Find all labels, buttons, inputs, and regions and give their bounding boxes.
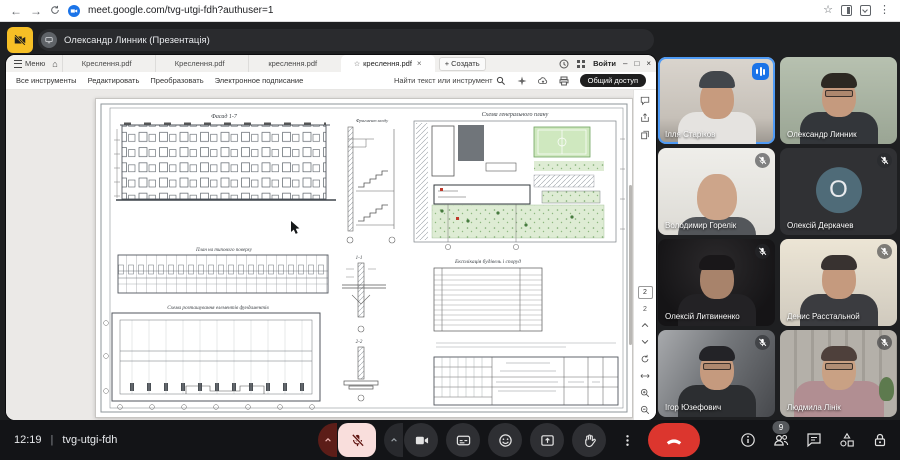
meet-control-bar: 12:19 | tvg-utgi-fdh 9 [0,420,900,460]
mic-options-caret[interactable] [318,423,337,457]
page-down-icon [640,337,650,347]
presentation-banner[interactable]: Олександр Линник (Презентація) [38,29,654,51]
print-icon [559,76,569,86]
acrobat-menu: Меню [11,59,48,68]
more-options-button[interactable] [614,423,640,457]
raise-hand-button[interactable] [572,423,606,457]
call-controls [318,423,700,457]
camera-toggle-button[interactable] [404,423,438,457]
back-icon[interactable]: ← [10,5,22,17]
browser-toolbar: ← → meet.google.com/tvg-utgi-fdh?authuse… [0,0,900,22]
search-icon [496,76,506,86]
mouse-cursor [291,221,299,234]
bookmark-star-icon[interactable]: ☆ [823,5,833,16]
presenting-indicator-icon[interactable] [7,27,33,53]
captions-button[interactable] [446,423,480,457]
meeting-panels: 9 [740,432,888,448]
chat-panel-button[interactable] [806,432,822,448]
participant-name: Ігор Юзефович [665,403,721,412]
zoom-out-icon [640,405,650,415]
meeting-code: tvg-utgi-fdh [62,434,117,446]
acrobat-tab-2: Креслення.pdf [155,55,244,72]
notifications-icon [559,59,569,69]
page-number-box: 2 [638,286,653,299]
acrobat-toolbar: Все инструменты Редактировать Преобразов… [6,72,656,90]
participant-tile[interactable]: Ігор Юзефович [658,330,775,417]
close-window-icon: × [646,59,651,68]
find-tool: Найти текст или инструмент [394,76,506,86]
participant-count-badge: 9 [773,421,790,434]
mic-off-icon [877,153,892,168]
end-call-button[interactable] [648,423,700,457]
close-tab-icon: × [417,59,422,68]
participant-name: Ілля Старіков [665,130,715,139]
create-tab-button: +Создать [439,57,486,71]
shared-screen-video[interactable]: Меню ⌂ Креслення.pdf Креслення.pdf кресл… [6,55,656,420]
fit-width-icon [640,371,650,381]
pdf-scrollbar [629,185,632,345]
export-icon [640,113,650,123]
participant-tile[interactable]: Ілля Старіков [658,57,775,144]
avatar: О [816,167,862,213]
mic-off-icon [755,335,770,350]
entrance-title: Фрагмент входу [356,118,389,123]
participant-name: Олександр Линник [787,130,857,139]
browser-menu-icon[interactable]: ⋮ [879,5,890,16]
maximize-icon: □ [634,59,639,68]
favorite-star-icon: ☆ [354,60,360,68]
side-panel-icon[interactable] [841,5,852,16]
audio-speaking-icon [752,63,769,80]
clock-time: 12:19 [14,434,42,446]
people-panel-button[interactable]: 9 [773,432,789,448]
participant-tile[interactable]: Олександр Линник [780,57,897,144]
section-2-label: 2-2 [356,340,363,345]
acrobat-tab-bar: Меню ⌂ Креслення.pdf Креслення.pdf кресл… [6,55,656,72]
reactions-button[interactable] [488,423,522,457]
minimize-icon: – [623,59,627,68]
participant-tile[interactable]: Денис Расстальной [780,239,897,326]
install-app-icon[interactable] [860,5,871,16]
zoom-in-icon [640,388,650,398]
present-screen-button[interactable] [530,423,564,457]
participants-grid: Ілля Старіков Олександр Линник Володимир… [658,57,897,417]
activities-button[interactable] [839,432,855,448]
mic-off-icon [755,153,770,168]
participant-name: Олексій Литвиненко [665,312,740,321]
explication-table-title: Експлікація будівель і споруд [454,258,521,265]
mic-toggle-button[interactable] [338,423,376,457]
reload-icon[interactable] [50,5,60,17]
genplan-title: Схема генерального плану [482,112,549,118]
participant-name: Володимир Горелік [665,221,736,230]
facade-title: Фасад 1-7 [211,113,238,120]
forward-icon[interactable]: → [30,5,42,17]
page-count: 2 [643,306,647,313]
share-access-button: Общий доступ [580,74,646,87]
presentation-banner-label: Олександр Линник (Презентація) [64,35,210,46]
meet-favicon-icon [68,5,80,17]
participant-name: Денис Расстальной [787,312,860,321]
acrobat-tab-1: Креслення.pdf [62,55,151,72]
floorplan-title: План на типового поверху [195,248,253,253]
camera-options-caret[interactable] [384,423,403,457]
participant-tile[interactable]: О Олексій Деркачев [780,148,897,235]
presenter-avatar [41,32,57,48]
apps-grid-icon [576,59,586,69]
foundation-title: Схема розташування елементів фундаментів [167,304,269,311]
mic-off-icon [877,335,892,350]
copy-icon [640,130,650,140]
page-up-icon [640,320,650,330]
meet-stage: Олександр Линник (Презентація) Меню ⌂ Кр… [0,22,900,420]
acrobat-tab-4-active: ☆ креслення.pdf × [341,55,435,72]
participant-tile[interactable]: Олексій Литвиненко [658,239,775,326]
acrobat-right-rail: 2 2 [633,90,656,420]
signin-button: Войти [593,59,616,68]
home-icon: ⌂ [52,59,57,69]
divider: | [51,434,54,446]
acrobat-tab-3: креслення.pdf [248,55,337,72]
mic-off-icon [755,244,770,259]
menu-edit: Редактировать [88,76,140,85]
pdf-canvas: Фасад 1-7 Фрагмент входу [6,90,656,420]
participant-name: Олексій Деркачев [787,221,853,230]
menu-esign: Электронное подписание [215,76,304,85]
participant-tile[interactable]: Людмила Лінік [780,330,897,417]
comment-icon [640,96,650,106]
plant-decoration [879,377,894,401]
ai-assistant-icon [517,76,527,86]
section-1-label: 1-1 [356,256,363,261]
participant-name: Людмила Лінік [787,403,841,412]
participant-tile[interactable]: Володимир Горелік [658,148,775,235]
menu-convert: Преобразовать [150,76,203,85]
host-controls-button[interactable] [872,432,888,448]
rotate-icon [640,354,650,364]
mic-off-icon [877,244,892,259]
hamburger-icon [14,60,22,68]
address-bar[interactable]: meet.google.com/tvg-utgi-fdh?authuser=1 [88,5,273,16]
cloud-upload-icon [538,76,548,86]
architectural-sheet: Фасад 1-7 Фрагмент входу [95,98,633,418]
menu-all-tools: Все инструменты [16,76,77,85]
meeting-details-button[interactable] [740,432,756,448]
